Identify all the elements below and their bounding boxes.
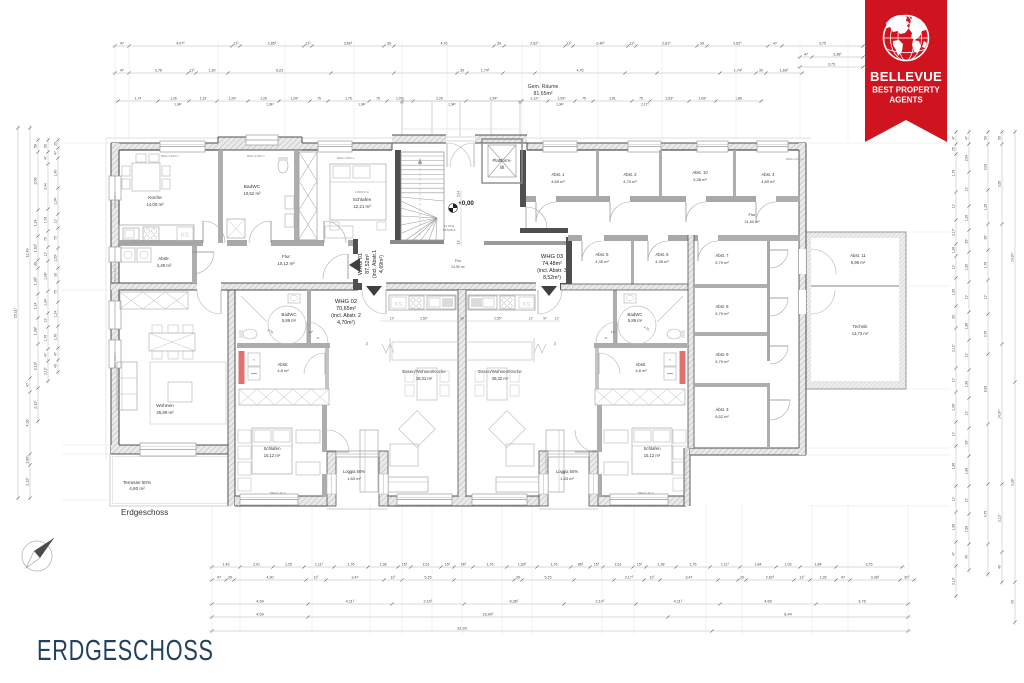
svg-text:3,75: 3,75: [819, 42, 826, 46]
svg-text:1,26⁵: 1,26⁵: [290, 97, 299, 101]
svg-text:5,79 m²: 5,79 m²: [715, 311, 729, 316]
svg-text:4,70m²): 4,70m²): [337, 320, 355, 326]
svg-text:25: 25: [952, 147, 956, 151]
svg-text:1,26: 1,26: [965, 215, 969, 222]
svg-text:75: 75: [44, 237, 48, 241]
svg-text:47: 47: [217, 576, 221, 580]
svg-text:11⁵: 11⁵: [649, 576, 655, 580]
svg-text:Küche: Küche: [148, 195, 162, 201]
svg-text:1,38: 1,38: [380, 563, 387, 567]
svg-text:11⁵: 11⁵: [305, 42, 311, 46]
svg-text:4,69: 4,69: [764, 600, 771, 604]
svg-text:1,90: 1,90: [952, 289, 956, 296]
svg-text:4,49 m²: 4,49 m²: [157, 263, 172, 268]
svg-text:3,03: 3,03: [984, 164, 988, 171]
svg-text:(incl. Abstr.1: (incl. Abstr.1: [372, 250, 378, 278]
svg-text:KS: KS: [523, 302, 531, 308]
svg-text:1,38: 1,38: [658, 563, 665, 567]
svg-text:1,03: 1,03: [785, 563, 792, 567]
svg-text:24,50 m²: 24,50 m²: [451, 265, 465, 269]
svg-text:4,8 m²: 4,8 m²: [277, 368, 289, 373]
svg-text:11⁵: 11⁵: [309, 330, 314, 334]
svg-text:18,5/26,9: 18,5/26,9: [443, 228, 456, 232]
svg-text:11⁵: 11⁵: [629, 42, 635, 46]
svg-text:4,76: 4,76: [577, 69, 584, 73]
svg-text:30⁵: 30⁵: [965, 238, 969, 244]
svg-text:4,35 m²: 4,35 m²: [655, 259, 669, 264]
svg-text:1,26⁵: 1,26⁵: [228, 97, 237, 101]
svg-text:75: 75: [639, 97, 643, 101]
svg-text:4,11⁵: 4,11⁵: [674, 600, 683, 604]
svg-text:47: 47: [44, 353, 48, 357]
svg-text:11⁵: 11⁵: [952, 496, 956, 501]
svg-text:4,70 m²: 4,70 m²: [623, 179, 637, 184]
svg-text:Abst. 3: Abst. 3: [715, 407, 729, 412]
svg-text:25: 25: [54, 142, 58, 146]
svg-text:47: 47: [54, 151, 58, 155]
svg-text:2,17⁵: 2,17⁵: [641, 103, 649, 107]
svg-text:39: 39: [34, 262, 38, 266]
svg-text:2,55⁵: 2,55⁵: [420, 317, 428, 321]
svg-text:3,38⁵: 3,38⁵: [1011, 477, 1015, 485]
svg-text:86⁵: 86⁵: [578, 563, 584, 567]
svg-text:1,26: 1,26: [952, 247, 956, 254]
svg-text:70,65m²: 70,65m²: [336, 306, 356, 312]
svg-text:1,98: 1,98: [965, 468, 969, 475]
svg-text:4,69 m²: 4,69 m²: [761, 179, 775, 184]
svg-text:47: 47: [952, 552, 956, 556]
svg-text:Loggia 50%: Loggia 50%: [343, 469, 365, 474]
svg-text:Abst. 1: Abst. 1: [551, 172, 565, 177]
svg-text:14,97⁵: 14,97⁵: [998, 409, 1002, 419]
svg-text:Abst. 5: Abst. 5: [595, 252, 609, 257]
svg-text:2,12⁵: 2,12⁵: [44, 366, 48, 374]
svg-text:11⁵: 11⁵: [952, 431, 956, 436]
svg-text:WHG 03: WHG 03: [541, 254, 563, 260]
svg-text:8,99: 8,99: [984, 386, 988, 393]
svg-text:BRH+0,830 m: BRH+0,830 m: [247, 154, 265, 158]
svg-text:11⁵: 11⁵: [233, 42, 239, 46]
svg-text:1,43: 1,43: [223, 563, 230, 567]
svg-text:1,74⁵: 1,74⁵: [481, 69, 490, 73]
svg-text:BRH+0,90 m: BRH+0,90 m: [270, 491, 287, 495]
svg-text:14,00 m²: 14,00 m²: [146, 202, 164, 207]
svg-text:1,11⁵: 1,11⁵: [315, 563, 324, 567]
svg-text:39: 39: [460, 69, 464, 73]
svg-text:39: 39: [516, 576, 520, 580]
svg-text:75: 75: [376, 97, 380, 101]
svg-text:39: 39: [54, 273, 58, 277]
svg-text:15,11⁵: 15,11⁵: [14, 307, 18, 318]
svg-text:1,26: 1,26: [260, 97, 267, 101]
svg-text:1,98: 1,98: [965, 526, 969, 533]
svg-text:50: 50: [44, 144, 48, 148]
svg-text:8,36⁵: 8,36⁵: [510, 600, 519, 604]
svg-text:47: 47: [773, 42, 777, 46]
svg-text:15,12 m²: 15,12 m²: [644, 453, 661, 458]
svg-text:47: 47: [965, 136, 969, 140]
svg-text:Abst. 11: Abst. 11: [850, 253, 866, 258]
svg-text:1,62⁵: 1,62⁵: [34, 243, 38, 252]
svg-text:74,48m²: 74,48m²: [542, 261, 562, 267]
svg-text:1,80/2,0 m: 1,80/2,0 m: [355, 190, 370, 194]
svg-text:3,76: 3,76: [984, 331, 988, 338]
svg-text:47: 47: [54, 352, 58, 356]
svg-text:5,79 m²: 5,79 m²: [715, 359, 729, 364]
svg-text:81,65m²: 81,65m²: [533, 91, 552, 97]
svg-text:2,12⁵: 2,12⁵: [998, 513, 1002, 521]
svg-text:5,38 m²: 5,38 m²: [693, 177, 707, 182]
svg-text:Abst. 8: Abst. 8: [715, 304, 729, 309]
svg-text:4,11⁵: 4,11⁵: [346, 600, 355, 604]
svg-text:4,30: 4,30: [267, 576, 274, 580]
svg-text:3,50: 3,50: [998, 181, 1002, 188]
svg-text:4,35 m²: 4,35 m²: [595, 259, 609, 264]
svg-text:1,30: 1,30: [209, 69, 216, 73]
svg-text:74: 74: [365, 342, 369, 346]
svg-text:1,76: 1,76: [690, 563, 697, 567]
svg-text:15⁵: 15⁵: [445, 563, 451, 567]
svg-text:Flur: Flur: [282, 254, 290, 259]
svg-text:47: 47: [952, 136, 956, 140]
svg-text:11⁵: 11⁵: [965, 497, 969, 502]
svg-text:11⁵: 11⁵: [390, 317, 395, 321]
svg-text:1,84: 1,84: [755, 563, 762, 567]
svg-text:2,62⁵: 2,62⁵: [766, 576, 775, 580]
svg-text:26,89 m²: 26,89 m²: [156, 410, 174, 415]
svg-text:3,75: 3,75: [858, 600, 865, 604]
svg-text:BRH+0,830 m: BRH+0,830 m: [786, 157, 804, 161]
svg-text:15⁵: 15⁵: [637, 563, 643, 567]
svg-text:47: 47: [841, 576, 845, 580]
svg-text:5,15: 5,15: [545, 576, 552, 580]
svg-text:Schlafen: Schlafen: [263, 446, 281, 451]
svg-text:11⁵: 11⁵: [555, 317, 560, 321]
svg-text:2,26: 2,26: [436, 97, 443, 101]
svg-text:39: 39: [387, 42, 391, 46]
svg-text:30⁵: 30⁵: [965, 439, 969, 445]
svg-text:1,30⁵: 1,30⁵: [54, 253, 58, 261]
svg-text:2,16⁵: 2,16⁵: [34, 361, 38, 370]
svg-text:1,24: 1,24: [34, 220, 38, 227]
svg-text:1,74: 1,74: [135, 97, 142, 101]
svg-text:1,19: 1,19: [200, 97, 207, 101]
svg-text:1,98: 1,98: [952, 524, 956, 531]
svg-text:1,84: 1,84: [815, 563, 822, 567]
svg-text:3,69: 3,69: [34, 178, 38, 185]
svg-text:39: 39: [460, 317, 464, 321]
svg-text:4,60 m²: 4,60 m²: [129, 486, 145, 491]
svg-text:97: 97: [543, 317, 547, 321]
svg-text:1,34⁵: 1,34⁵: [358, 103, 366, 107]
svg-text:5,89 m²: 5,89 m²: [282, 318, 297, 323]
svg-text:50: 50: [34, 144, 38, 148]
svg-text:Plattform-: Plattform-: [492, 158, 512, 163]
svg-text:3,75: 3,75: [828, 63, 835, 67]
svg-text:3,47: 3,47: [352, 576, 359, 580]
svg-text:47: 47: [804, 53, 808, 57]
svg-text:2,10⁵: 2,10⁵: [596, 600, 605, 604]
svg-text:3,38⁵: 3,38⁵: [833, 53, 842, 57]
svg-text:39: 39: [497, 42, 501, 46]
svg-text:38,31 m²: 38,31 m²: [416, 376, 433, 381]
svg-text:5,15: 5,15: [425, 576, 432, 580]
svg-text:1,34⁵: 1,34⁵: [44, 297, 48, 305]
svg-text:10,12 m²: 10,12 m²: [277, 261, 295, 266]
svg-text:1,76: 1,76: [348, 563, 355, 567]
svg-text:11⁵: 11⁵: [44, 251, 48, 256]
svg-text:4,07⁵: 4,07⁵: [176, 42, 185, 46]
svg-text:1,26: 1,26: [820, 576, 827, 580]
svg-text:BRH 0,63 m: BRH 0,63 m: [113, 192, 117, 208]
svg-text:12,49: 12,49: [26, 249, 30, 258]
svg-text:1,24: 1,24: [34, 303, 38, 310]
svg-text:40: 40: [54, 364, 58, 368]
svg-text:2,34⁵: 2,34⁵: [489, 97, 498, 101]
svg-text:2,17⁵: 2,17⁵: [625, 576, 634, 580]
svg-text:2,17⁵: 2,17⁵: [952, 227, 956, 235]
svg-text:Wohnen: Wohnen: [156, 403, 174, 409]
svg-text:2,55⁵: 2,55⁵: [494, 317, 502, 321]
svg-text:1,90: 1,90: [965, 264, 969, 271]
svg-text:(incl. Abstr. 2: (incl. Abstr. 2: [331, 313, 361, 319]
svg-text:15⁵: 15⁵: [594, 563, 600, 567]
svg-text:Loggia 50%: Loggia 50%: [556, 469, 578, 474]
svg-text:ERDGESCHOSS: ERDGESCHOSS: [37, 635, 214, 667]
svg-text:1,24: 1,24: [54, 311, 58, 318]
svg-text:47: 47: [120, 69, 124, 73]
svg-text:+0,00: +0,00: [458, 200, 474, 207]
svg-text:BadWC: BadWC: [627, 312, 642, 317]
svg-text:71: 71: [316, 336, 320, 340]
svg-text:1,76: 1,76: [487, 563, 494, 567]
svg-text:5,89 m²: 5,89 m²: [628, 318, 643, 323]
svg-text:2,12⁵: 2,12⁵: [26, 477, 30, 486]
svg-text:1,51: 1,51: [423, 563, 430, 567]
svg-text:Gem. Räume: Gem. Räume: [528, 84, 559, 90]
svg-text:50: 50: [998, 136, 1002, 140]
svg-text:1,38⁵: 1,38⁵: [952, 402, 956, 410]
svg-text:1,34⁵: 1,34⁵: [54, 196, 58, 204]
svg-text:4,75: 4,75: [984, 511, 988, 518]
svg-text:4,69: 4,69: [256, 613, 263, 617]
svg-text:11⁵: 11⁵: [952, 203, 956, 208]
svg-text:30: 30: [759, 69, 763, 73]
svg-text:11⁵: 11⁵: [799, 576, 805, 580]
svg-text:3,75: 3,75: [866, 563, 873, 567]
svg-text:1,34⁵: 1,34⁵: [448, 103, 456, 107]
svg-text:1,26: 1,26: [984, 204, 988, 211]
svg-text:47: 47: [26, 383, 30, 387]
svg-text:11⁵: 11⁵: [313, 576, 319, 580]
svg-text:11⁵: 11⁵: [189, 69, 195, 73]
svg-text:Flur: Flur: [749, 212, 757, 217]
svg-text:1,36⁵: 1,36⁵: [34, 276, 38, 285]
svg-text:Schlafen: Schlafen: [353, 197, 372, 203]
svg-text:2,01: 2,01: [253, 563, 260, 567]
svg-text:4,76: 4,76: [441, 42, 448, 46]
svg-text:3,94: 3,94: [457, 191, 461, 197]
svg-text:1,86: 1,86: [735, 97, 742, 101]
svg-text:40: 40: [965, 555, 969, 559]
svg-text:16,90⁵: 16,90⁵: [482, 613, 494, 617]
svg-text:Abstr.: Abstr.: [636, 362, 647, 367]
svg-text:1,38⁵: 1,38⁵: [44, 271, 48, 279]
svg-text:2,62⁵: 2,62⁵: [530, 42, 539, 46]
svg-text:Abst. 10: Abst. 10: [692, 170, 708, 175]
svg-text:8,52m²): 8,52m²): [543, 275, 561, 281]
svg-text:3,44: 3,44: [44, 183, 48, 190]
svg-text:1,83 m²: 1,83 m²: [560, 476, 574, 481]
svg-text:11⁵: 11⁵: [457, 239, 461, 244]
svg-text:11⁵: 11⁵: [44, 317, 48, 322]
svg-text:Schlafen: Schlafen: [643, 446, 661, 451]
svg-text:86⁵: 86⁵: [461, 563, 467, 567]
svg-text:Abstr.: Abstr.: [278, 362, 289, 367]
svg-text:11⁵: 11⁵: [965, 352, 969, 357]
svg-text:Abst. 9: Abst. 9: [715, 352, 729, 357]
svg-text:38,32 m²: 38,32 m²: [492, 376, 509, 381]
svg-text:12,73 m²: 12,73 m²: [852, 331, 869, 336]
svg-text:11⁵: 11⁵: [952, 264, 956, 269]
svg-text:(incl. Abstr. 3: (incl. Abstr. 3: [537, 268, 567, 274]
svg-text:1,34⁵: 1,34⁵: [266, 103, 274, 107]
svg-text:KS: KS: [395, 302, 403, 308]
svg-text:39: 39: [952, 315, 956, 319]
svg-text:1,76: 1,76: [345, 97, 352, 101]
svg-text:BRH+0,830 m: BRH+0,830 m: [337, 156, 355, 160]
svg-text:1,76: 1,76: [984, 262, 988, 269]
svg-text:3,38⁵: 3,38⁵: [871, 576, 880, 580]
svg-text:Abst. 7: Abst. 7: [715, 253, 729, 258]
svg-text:1,05⁵: 1,05⁵: [557, 97, 566, 101]
svg-text:BRH 0,915 m: BRH 0,915 m: [113, 264, 117, 281]
svg-text:4,8 m²: 4,8 m²: [635, 368, 647, 373]
svg-text:2,76: 2,76: [155, 69, 162, 73]
svg-text:AGENTS: AGENTS: [889, 96, 923, 105]
svg-text:2,12⁵: 2,12⁵: [34, 400, 38, 409]
svg-text:39: 39: [700, 42, 704, 46]
svg-text:1,74⁵: 1,74⁵: [734, 69, 743, 73]
svg-text:1,79: 1,79: [952, 170, 956, 177]
svg-text:8,44: 8,44: [784, 613, 791, 617]
svg-text:11⁵: 11⁵: [54, 218, 58, 223]
svg-text:1,51: 1,51: [609, 97, 616, 101]
svg-text:1,76: 1,76: [54, 334, 58, 341]
svg-text:1,26: 1,26: [170, 97, 177, 101]
svg-text:15,12 m²: 15,12 m²: [264, 453, 281, 458]
svg-text:11⁵: 11⁵: [965, 410, 969, 415]
svg-text:2,10⁵: 2,10⁵: [424, 600, 433, 604]
svg-text:15⁵: 15⁵: [402, 563, 408, 567]
svg-text:3,47: 3,47: [686, 576, 693, 580]
svg-text:1,25: 1,25: [285, 563, 292, 567]
svg-text:1,76: 1,76: [551, 563, 558, 567]
svg-text:BadWC: BadWC: [281, 312, 296, 317]
svg-text:3,69⁵: 3,69⁵: [344, 42, 353, 46]
svg-text:75: 75: [582, 97, 586, 101]
svg-text:Abst. 4: Abst. 4: [761, 172, 775, 177]
svg-text:74: 74: [553, 342, 557, 346]
svg-text:12,21 m²: 12,21 m²: [353, 204, 371, 209]
svg-text:40: 40: [998, 565, 1002, 569]
svg-text:4,69: 4,69: [256, 600, 263, 604]
svg-text:11⁵: 11⁵: [952, 377, 956, 382]
svg-text:4,69 m²: 4,69 m²: [551, 179, 565, 184]
svg-text:11⁵: 11⁵: [529, 317, 534, 321]
svg-text:BadWC: BadWC: [244, 184, 261, 190]
svg-text:4,69m²): 4,69m²): [379, 255, 385, 273]
svg-text:Abstr.: Abstr.: [158, 256, 170, 261]
svg-text:11⁵: 11⁵: [965, 186, 969, 191]
svg-text:47: 47: [120, 42, 124, 46]
svg-text:1,38⁵: 1,38⁵: [34, 326, 38, 335]
svg-text:BEST PROPERTY: BEST PROPERTY: [872, 86, 940, 95]
svg-text:47: 47: [44, 156, 48, 160]
svg-text:Essen/Wohnen/Küche: Essen/Wohnen/Küche: [402, 369, 446, 374]
svg-text:1,40: 1,40: [54, 170, 58, 177]
svg-text:1,11⁵: 1,11⁵: [721, 563, 730, 567]
svg-text:2,81⁵: 2,81⁵: [662, 42, 671, 46]
svg-text:75: 75: [54, 236, 58, 240]
svg-text:2,12⁵: 2,12⁵: [952, 576, 956, 584]
svg-text:2,12⁵: 2,12⁵: [952, 343, 956, 351]
svg-text:1,76: 1,76: [44, 335, 48, 342]
svg-text:2,62⁵: 2,62⁵: [733, 42, 742, 46]
svg-text:1,96: 1,96: [965, 381, 969, 388]
svg-text:5,96 m²: 5,96 m²: [851, 260, 866, 265]
svg-text:1,63⁵: 1,63⁵: [665, 97, 674, 101]
svg-text:30⁵: 30⁵: [904, 576, 910, 580]
svg-text:11⁵: 11⁵: [965, 294, 969, 299]
svg-text:75: 75: [54, 290, 58, 294]
svg-text:50: 50: [984, 136, 988, 140]
svg-text:1,96: 1,96: [952, 463, 956, 470]
svg-text:11⁵: 11⁵: [611, 330, 616, 334]
svg-text:Essen/Wohnen/Küche: Essen/Wohnen/Küche: [478, 369, 522, 374]
svg-text:Technik: Technik: [853, 324, 869, 329]
svg-text:6,23: 6,23: [276, 69, 283, 73]
svg-text:1,83 m²: 1,83 m²: [347, 476, 361, 481]
svg-text:11⁵: 11⁵: [390, 576, 396, 580]
svg-text:39: 39: [228, 576, 232, 580]
svg-text:Abst. 6: Abst. 6: [655, 252, 669, 257]
svg-text:8,52 m²: 8,52 m²: [715, 414, 729, 419]
svg-text:2,40⁵: 2,40⁵: [596, 42, 605, 46]
svg-text:75: 75: [317, 97, 321, 101]
svg-text:1,96: 1,96: [965, 323, 969, 330]
svg-text:Erdgeschoss: Erdgeschoss: [121, 508, 168, 517]
svg-text:5,79 m²: 5,79 m²: [715, 260, 729, 265]
svg-text:BRH+0,90 m: BRH+0,90 m: [638, 491, 655, 495]
svg-text:1,76: 1,76: [44, 217, 48, 224]
svg-text:1,34⁵: 1,34⁵: [174, 103, 182, 107]
svg-text:87,52m²: 87,52m²: [365, 254, 371, 274]
svg-text:1,34⁵: 1,34⁵: [556, 103, 564, 107]
svg-text:11⁵: 11⁵: [566, 42, 572, 46]
svg-text:2,85⁵: 2,85⁵: [268, 42, 277, 46]
svg-text:71: 71: [604, 336, 608, 340]
svg-text:BRH 0,63 m: BRH 0,63 m: [113, 352, 117, 368]
svg-text:Abst. 2: Abst. 2: [623, 172, 637, 177]
svg-text:10,52 m²: 10,52 m²: [243, 191, 261, 196]
svg-text:2,04: 2,04: [965, 155, 969, 162]
svg-text:36⁵: 36⁵: [984, 234, 988, 240]
svg-text:1,08⁵: 1,08⁵: [698, 97, 707, 101]
svg-text:30: 30: [1011, 600, 1015, 604]
svg-text:WHG 02: WHG 02: [335, 299, 357, 305]
svg-text:14,97⁵: 14,97⁵: [1011, 252, 1015, 262]
